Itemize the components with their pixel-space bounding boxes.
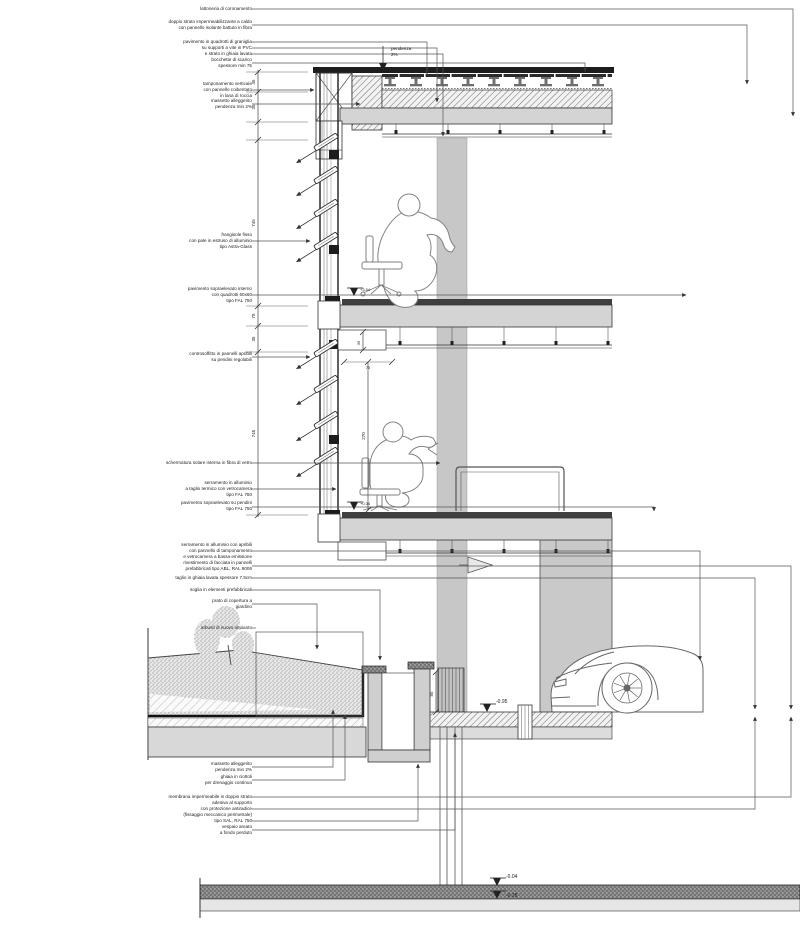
annotation-line: spessore min 75 bbox=[211, 63, 252, 69]
dimension-lines: 45357457535745270357585 bbox=[246, 69, 439, 715]
level-value: -0.04 bbox=[506, 874, 518, 880]
annotation-line: soglia in elementi prefabbricati bbox=[190, 587, 252, 593]
annotation-line: per drenaggio continuo bbox=[205, 780, 252, 786]
annotation-20: membrana impermeabile in doppio stratoad… bbox=[169, 794, 253, 824]
channel-wall-left bbox=[368, 673, 382, 750]
chair-stem bbox=[379, 269, 384, 285]
slope-note-line: 2% bbox=[391, 52, 411, 58]
annotation-12: serramento in alluminio con apribilicon … bbox=[181, 542, 252, 560]
raised-floor-finish bbox=[342, 512, 612, 518]
annotation-13: rivestimento di facciata in pannellipref… bbox=[183, 560, 252, 572]
leader-line bbox=[252, 604, 317, 649]
person-head bbox=[398, 194, 420, 216]
dimension-value: 85 bbox=[429, 691, 434, 697]
roof-suspended-ceiling bbox=[382, 124, 612, 137]
dimension-value: 35 bbox=[251, 336, 256, 342]
dimension-value: 75 bbox=[366, 365, 371, 370]
drainage-channel bbox=[362, 662, 434, 762]
annotation-line: a fondo perduto bbox=[220, 830, 252, 836]
level-value: -0.28 bbox=[506, 893, 518, 899]
annotation-line: prefabbricati tipo ABL, RAL 9006 bbox=[183, 566, 252, 572]
annotation-line: tipo FAL 750 bbox=[181, 506, 252, 512]
annotation-19: ghiaia in ciottoliper drenaggio continuo bbox=[205, 774, 252, 786]
person-lower-floor bbox=[360, 422, 438, 511]
column-below-grade bbox=[440, 727, 462, 885]
annotation-2: pavimento in quadrotti di granigliasu su… bbox=[183, 39, 252, 57]
chair-stem bbox=[377, 495, 382, 506]
mullion-transom bbox=[329, 245, 339, 254]
leader-line bbox=[252, 590, 380, 660]
roof-coping bbox=[313, 67, 614, 73]
annotation-line: arbusti di nuovo impianto bbox=[201, 625, 252, 631]
level-value: -0.95 bbox=[496, 699, 508, 705]
annotation-line: taglio in ghiaia lavata spessore 7.5cm bbox=[175, 575, 252, 581]
chair-seat bbox=[362, 262, 402, 269]
slope-note-line: pendenza bbox=[391, 46, 411, 52]
dimension-value: 745 bbox=[251, 429, 256, 437]
louver-blade bbox=[294, 447, 338, 477]
chair-seat bbox=[360, 489, 400, 495]
annotation-line: tipo Astra-Glass bbox=[189, 244, 252, 250]
annotation-14: taglio in ghiaia lavata spessore 7.5cm bbox=[175, 575, 252, 581]
annotation-16: prato di copertura agiardino bbox=[212, 598, 252, 610]
column-cladding bbox=[438, 668, 464, 712]
annotation-line: con pannello isolante battuto in fibra bbox=[169, 25, 253, 31]
louver-blade bbox=[294, 339, 338, 369]
level-value: +3.54 bbox=[360, 287, 371, 292]
annotation-line: lattoneria di coronamento bbox=[200, 6, 252, 12]
slab-edge-closure bbox=[318, 301, 340, 329]
level-markers: -0.95-0.04-0.28+3.54+0.34 bbox=[347, 287, 518, 899]
channel-base bbox=[368, 750, 430, 762]
annotation-3: bocchette di scaricospessore min 75 bbox=[211, 57, 252, 69]
louver-blade bbox=[294, 375, 338, 405]
channel-cap-right bbox=[408, 662, 434, 669]
annotation-21: vespaio areatoa fondo perduto bbox=[220, 824, 252, 836]
annotation-line: pendenza min 2% bbox=[211, 767, 252, 773]
chair-backrest bbox=[366, 236, 373, 262]
leader-line bbox=[252, 764, 418, 821]
lean-concrete bbox=[200, 899, 800, 911]
dimension-value: 35 bbox=[356, 340, 361, 345]
level-value: +0.34 bbox=[360, 501, 371, 506]
annotation-line: pendenza min 2% bbox=[211, 104, 252, 110]
annotation-line: tipo FAL 750 bbox=[188, 298, 252, 304]
annotation-6: frangisole fissocon pale in estruso di a… bbox=[189, 232, 252, 250]
annotation-15: soglia in elementi prefabbricati bbox=[190, 587, 252, 593]
roof-slab bbox=[340, 108, 612, 124]
drainage-layer bbox=[148, 718, 363, 727]
annotation-8: controsoffitto in pannelli apribilisu pe… bbox=[189, 351, 252, 363]
slope-note: pendenza 2% bbox=[391, 46, 411, 57]
annotation-7: pavimento sopraelevato internocon quadro… bbox=[188, 286, 252, 304]
raised-floor-finish bbox=[342, 299, 612, 305]
louver-blade bbox=[294, 166, 338, 196]
channel-wall-right bbox=[414, 669, 430, 750]
table bbox=[456, 467, 564, 511]
annotation-line: tipo FAL 750 bbox=[185, 492, 252, 498]
annotation-9: schermatura solare interna in fibra di v… bbox=[166, 460, 252, 466]
car-hub bbox=[624, 685, 630, 691]
dimension-value: 75 bbox=[251, 313, 256, 319]
section-drawing-canvas: 45357457535745270357585 -0.95-0.04-0.28+… bbox=[0, 0, 800, 932]
level-marker-foundation-top: -0.04 bbox=[490, 874, 518, 886]
louver-blade bbox=[294, 199, 338, 229]
annotation-1: doppio strato impermeabilizzante a caldo… bbox=[169, 19, 253, 31]
annotation-10: serramento in alluminioa taglio termico … bbox=[185, 480, 252, 498]
annotation-line: schermatura solare interna in fibra di v… bbox=[166, 460, 252, 466]
annotation-17: arbusti di nuovo impianto bbox=[201, 625, 252, 631]
caster bbox=[361, 292, 365, 296]
annotation-5: massetto alleggeritopendenza min 2% bbox=[211, 98, 252, 110]
annotation-4: tamponamento verticalecon pannello coibe… bbox=[203, 81, 252, 99]
mullion-transom bbox=[329, 150, 339, 159]
caster bbox=[397, 292, 401, 296]
dimension-value: 270 bbox=[361, 432, 366, 440]
section-reference-arrow bbox=[468, 557, 492, 573]
annotation-11: pavimento sopraelevato su pendinitipo FA… bbox=[181, 500, 252, 512]
suspended-ceiling bbox=[386, 327, 612, 348]
channel-cavity bbox=[382, 673, 414, 750]
section-drawing: 45357457535745270357585 -0.95-0.04-0.28+… bbox=[0, 0, 800, 932]
channel-cap-left bbox=[362, 666, 386, 673]
slab-edge-closure bbox=[318, 514, 340, 542]
annotation-line: giardino bbox=[212, 604, 252, 610]
level-marker-garage-floor: -0.95 bbox=[480, 699, 508, 712]
mullion-transom bbox=[329, 435, 339, 444]
annotation-line: su pendini regolabili bbox=[189, 357, 252, 363]
person-head bbox=[383, 422, 403, 442]
annotation-18: massetto alleggeritopendenza min 2% bbox=[211, 761, 252, 773]
roof-screed bbox=[382, 90, 612, 108]
roof-pavers bbox=[382, 74, 612, 77]
annotation-0: lattoneria di coronamento bbox=[200, 6, 252, 12]
floor-three-slab bbox=[318, 512, 612, 560]
dimension-value: 745 bbox=[251, 219, 256, 227]
